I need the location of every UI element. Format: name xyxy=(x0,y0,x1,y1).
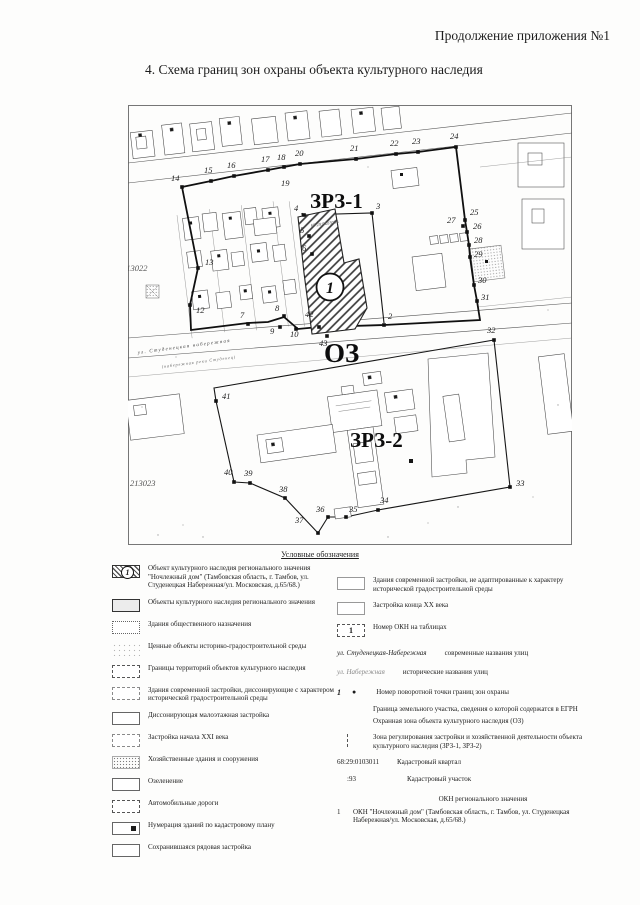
boundary-point-marker xyxy=(307,234,311,238)
dashed-box-icon xyxy=(112,800,140,813)
boundary-point-number: 34 xyxy=(379,495,389,505)
section-title: 4. Схема границ зон охраны объекта культ… xyxy=(145,62,483,78)
boundary-point-number: 35 xyxy=(348,504,358,514)
boundary-point-number: 20 xyxy=(295,148,304,158)
boundary-point-marker xyxy=(326,515,330,519)
legend-xxi-buildings: Застройка начала XXI века xyxy=(112,733,344,747)
boundary-point-number: 18 xyxy=(277,152,286,162)
boundary-point-number: 28 xyxy=(474,235,483,245)
boundary-point-marker xyxy=(467,243,471,247)
boundary-point-marker xyxy=(354,157,358,161)
legend-xx-buildings: Застройка конца XX века xyxy=(337,601,589,615)
boundary-point-marker xyxy=(508,485,512,489)
dashed-box-icon xyxy=(112,665,140,678)
okn-address-index: 1 xyxy=(337,808,345,825)
boundary-point-number: 32 xyxy=(486,325,496,335)
dash-dot-box-icon xyxy=(112,734,140,747)
boundary-point-marker xyxy=(214,399,218,403)
boundary-point-number: 2 xyxy=(388,311,393,321)
legend-cadastral-quarter: 68:29:0103011 Кадастровый квартал xyxy=(337,758,589,767)
legend-dissonant-lowrise: Диссонирующая малоэтажная застройка xyxy=(112,711,344,725)
boundary-point-marker xyxy=(283,496,287,500)
boundary-point-number: 26 xyxy=(473,221,482,231)
legend-right-column: Здания современной застройки, не адаптир… xyxy=(337,576,589,833)
modern-street-sample: ул. Студенецкая-Набережная xyxy=(337,649,427,658)
boundary-point-number: 17 xyxy=(261,154,270,164)
appendix-header: Продолжение приложения №1 xyxy=(0,28,610,44)
boundary-point-marker xyxy=(382,323,386,327)
faint-dots-icon xyxy=(112,643,140,656)
boundary-point-number: 15 xyxy=(204,165,213,175)
legend-egrn-border: Граница земельного участка, сведения о к… xyxy=(373,705,589,714)
boundary-point-marker xyxy=(188,303,192,307)
utility-building xyxy=(146,285,159,298)
boundary-point-marker xyxy=(463,218,467,222)
boundary-point-marker xyxy=(248,481,252,485)
boundary-point-number: 40 xyxy=(224,467,233,477)
bold-box-icon xyxy=(112,599,140,612)
boundary-point-number: 5 xyxy=(300,225,304,235)
boundary-point-marker xyxy=(196,266,200,270)
boundary-point-marker xyxy=(468,255,472,259)
boundary-point-marker xyxy=(298,162,302,166)
boundary-point-marker xyxy=(266,168,270,172)
boundary-point-marker xyxy=(370,211,374,215)
boundary-point-marker xyxy=(310,252,314,256)
boundary-point-marker xyxy=(232,480,236,484)
boundary-point-marker xyxy=(472,283,476,287)
plain-box-icon xyxy=(337,577,365,590)
boundary-point-number: 4 xyxy=(294,203,299,213)
legend-cadastral-parcel: :93 Кадастровый участок xyxy=(337,775,589,784)
legend-okn-number: 1 Номер ОКН на таблицах xyxy=(337,623,589,637)
boundary-point-marker xyxy=(180,185,184,189)
legend-building-numbering: Нумерация зданий по кадастровому плану xyxy=(112,821,344,835)
boundary-point-marker xyxy=(461,224,465,228)
boundary-point-number: 36 xyxy=(315,504,325,514)
okn-icon-number: 1 xyxy=(121,566,134,579)
protection-zones-map: 1 68:29:0103056 xyxy=(128,105,572,545)
boundary-point-marker xyxy=(316,531,320,535)
boundary-point-marker xyxy=(317,325,321,329)
boundary-point-marker xyxy=(282,314,286,318)
boundary-point-number: 33 xyxy=(515,478,525,488)
legend-utility-buildings: Хозяйственные здания и сооружения xyxy=(112,755,344,769)
boundary-point-number: 13 xyxy=(205,257,214,267)
boundary-point-number: 41 xyxy=(222,391,231,401)
boundary-point-number: 29 xyxy=(474,249,483,259)
legend-dissonant-modern: Здания современной застройки, диссонирую… xyxy=(112,686,344,703)
legend-okn-address: 1 ОКН "Ночлежный дом" (Тамбовская област… xyxy=(337,808,589,825)
boundary-point-number: 14 xyxy=(171,173,180,183)
turning-point-dot-icon: ● xyxy=(352,688,356,697)
street-name-historic-label: (набережная реки Студенец) xyxy=(161,354,236,369)
legend-okn-regional: Объекты культурного наследия регионально… xyxy=(112,598,344,612)
boundary-point-number: 43 xyxy=(319,338,328,348)
boundary-point-marker xyxy=(278,325,282,329)
boundary-point-number: 7 xyxy=(240,310,245,320)
legend-public-buildings: Здания общественного назначения xyxy=(112,620,344,634)
legend-valuable-objects: Ценные объекты историко-градостроительно… xyxy=(112,642,344,656)
plain-box-icon xyxy=(337,602,365,615)
boundary-point-number: 23 xyxy=(412,136,421,146)
map-buildings-top-strip xyxy=(130,105,402,159)
dash-dot-line-icon xyxy=(347,734,351,747)
boundary-point-marker xyxy=(416,150,420,154)
boundary-point-number: 38 xyxy=(278,484,288,494)
boundary-point-number: 10 xyxy=(290,329,299,339)
boundary-point-marker xyxy=(492,338,496,342)
legend-turning-point: 1 ● Номер поворотной точки границ зон ох… xyxy=(337,688,589,697)
boundary-point-number: 31 xyxy=(480,292,490,302)
historic-street-sample: ул. Набережная xyxy=(337,668,385,677)
solid-box-icon xyxy=(112,712,140,725)
legend-nonadapted-modern: Здания современной застройки, не адаптир… xyxy=(337,576,589,593)
legend-modern-street-names: ул. Студенецкая-Набережная современные н… xyxy=(337,649,589,658)
boundary-point-number: 19 xyxy=(281,178,290,188)
boundary-point-marker xyxy=(465,230,469,234)
boundary-point-marker xyxy=(475,299,479,303)
boundary-point-number: 9 xyxy=(270,326,275,336)
legend-greenery: Озеленение xyxy=(112,777,344,791)
turning-point-number-sample: 1 xyxy=(337,688,341,697)
scanned-document-page: Продолжение приложения №1 4. Схема грани… xyxy=(0,0,640,905)
boundary-point-number: 16 xyxy=(227,160,236,170)
boundary-point-number: 37 xyxy=(294,515,304,525)
cadastral-quarter-number: 68:29:0103011 xyxy=(337,758,389,767)
boundary-point-number: 24 xyxy=(450,131,459,141)
dotted-box-icon xyxy=(112,621,140,634)
okn-hatched-box-icon: 1 xyxy=(112,565,140,578)
solid-box-icon xyxy=(112,778,140,791)
boundary-point-marker xyxy=(232,174,236,178)
solid-box-icon xyxy=(112,844,140,857)
box-with-square-icon xyxy=(112,822,140,835)
boundary-point-marker xyxy=(209,179,213,183)
boundary-point-number: 27 xyxy=(447,215,456,225)
boundary-point-number: 22 xyxy=(390,138,399,148)
legend-roads: Автомобильные дороги xyxy=(112,799,344,813)
legend-preserved-rows: Сохранившаяся рядовая застройка xyxy=(112,843,344,857)
cadastral-quarter-label-bottom: 213023 xyxy=(130,478,156,488)
boundary-point-number: 25 xyxy=(470,207,479,217)
boundary-point-number: 3 xyxy=(375,201,380,211)
legend-okn-object: 1 Объект культурного наследия региональн… xyxy=(112,564,344,590)
boundary-point-number: 12 xyxy=(196,305,205,315)
boundary-point-marker xyxy=(344,515,348,519)
boundary-point-marker xyxy=(302,213,306,217)
boundary-point-number: 8 xyxy=(275,303,280,313)
legend-heading: Условные обозначения xyxy=(240,550,400,559)
okn-number: 1 xyxy=(326,280,334,297)
stipple-box-icon xyxy=(112,756,140,769)
legend-zrz-zones: Зона регулирования застройки и хозяйстве… xyxy=(337,733,589,750)
legend-left-column: 1 Объект культурного наследия региональн… xyxy=(112,564,344,865)
boundary-point-number: 21 xyxy=(350,143,359,153)
boundary-point-number: 30 xyxy=(477,275,487,285)
cadastral-quarter-label-left: 213022 xyxy=(128,263,148,273)
zone-label-zrz2: ЗРЗ-2 xyxy=(350,428,403,452)
legend-okn-regional-heading: ОКН регионального значения xyxy=(377,795,589,804)
cadastral-parcel-number: :93 xyxy=(337,775,399,784)
boundary-point-marker xyxy=(246,322,250,326)
boundary-point-marker xyxy=(454,145,458,149)
legend-okn-territory-borders: Границы территорий объектов культурного … xyxy=(112,664,344,678)
boundary-point-marker xyxy=(394,152,398,156)
map-scheme: 1 68:29:0103056 xyxy=(128,105,572,545)
legend-oz-zone: Охранная зона объекта культурного наслед… xyxy=(373,717,589,726)
legend-historic-street-names: ул. Набережная исторические названия ули… xyxy=(337,668,589,677)
boundary-point-marker xyxy=(282,165,286,169)
zone-label-zrz1: ЗРЗ-1 xyxy=(310,189,363,213)
dash-dot-box-icon xyxy=(112,687,140,700)
okn-number-box-icon: 1 xyxy=(337,624,365,637)
boundary-point-number: 42 xyxy=(305,309,314,319)
boundary-point-number: 39 xyxy=(243,468,253,478)
boundary-point-marker xyxy=(376,508,380,512)
zone-label-oz: ОЗ xyxy=(324,338,359,368)
